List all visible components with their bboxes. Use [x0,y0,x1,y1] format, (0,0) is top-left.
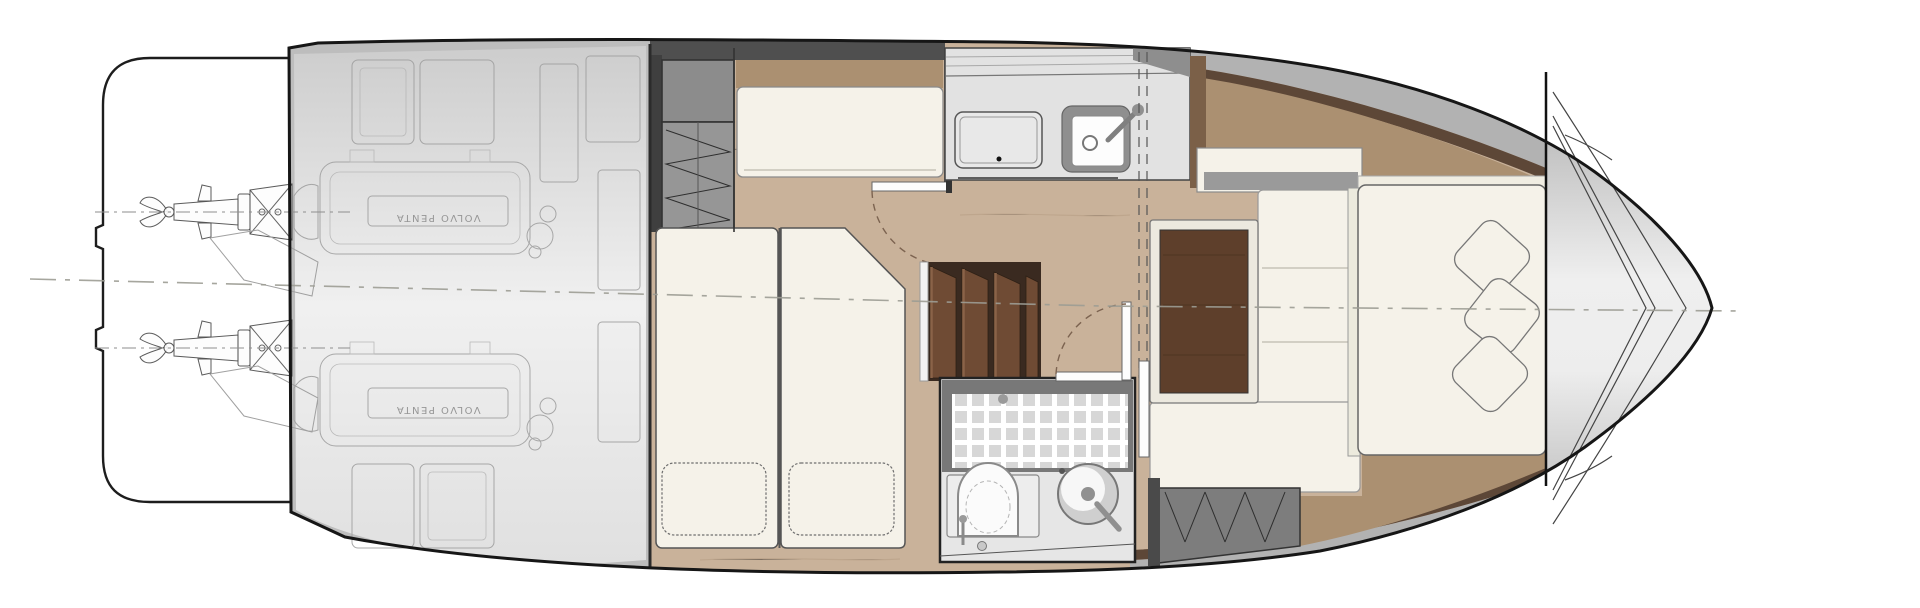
guest-cabin-top-band [650,40,945,60]
toilet-valve [959,515,967,523]
settee [737,87,943,177]
stair-tread [930,266,956,378]
sink-drain [1083,136,1097,150]
stair-tread [994,272,1020,378]
toilet-flush-knob [978,542,987,551]
washbasin-drain [1081,487,1095,501]
guest-door-hinge [946,180,952,193]
cooktop-knob [997,157,1002,162]
master-cabin-door [1139,361,1149,457]
starboard-engine-label: VOLVO PENTA [395,404,480,415]
companionway-stairs [920,262,1041,381]
twin-bed-pillow-left [662,463,766,535]
sofa-back-edge [1204,172,1358,190]
stair-handrail [920,262,928,381]
head-doorway [1056,372,1131,381]
port-engine-label: VOLVO PENTA [395,212,480,223]
boat-floorplan-page: VOLVO PENTA VOLVO PENTA [0,0,1920,608]
wardrobe-side-panel [1148,478,1160,566]
shower-drain [998,394,1008,404]
stair-tread [962,268,988,378]
swim-platform-outline [96,58,310,502]
bow-locker-fill [1546,36,1746,576]
locker-side-panel [650,55,662,232]
sink-faucet-base [1132,104,1144,116]
washbasin-tap [1059,468,1065,474]
galley-sink-basin [1072,116,1124,166]
table-top-wood [1160,230,1248,393]
swim-platform [96,58,310,502]
guest-cabin-door [872,182,948,191]
head-door-open [1122,302,1131,380]
settee-shelf [736,60,943,88]
stair-tread [1026,276,1038,378]
shower-tiles [952,394,1128,468]
sofa-bottom-arm [1150,402,1360,492]
twin-bed-pillow-right [789,463,894,535]
guest-cabinet [662,60,734,122]
boat-floorplan-drawing: VOLVO PENTA VOLVO PENTA [0,0,1920,608]
engine-room-floor [294,46,646,566]
